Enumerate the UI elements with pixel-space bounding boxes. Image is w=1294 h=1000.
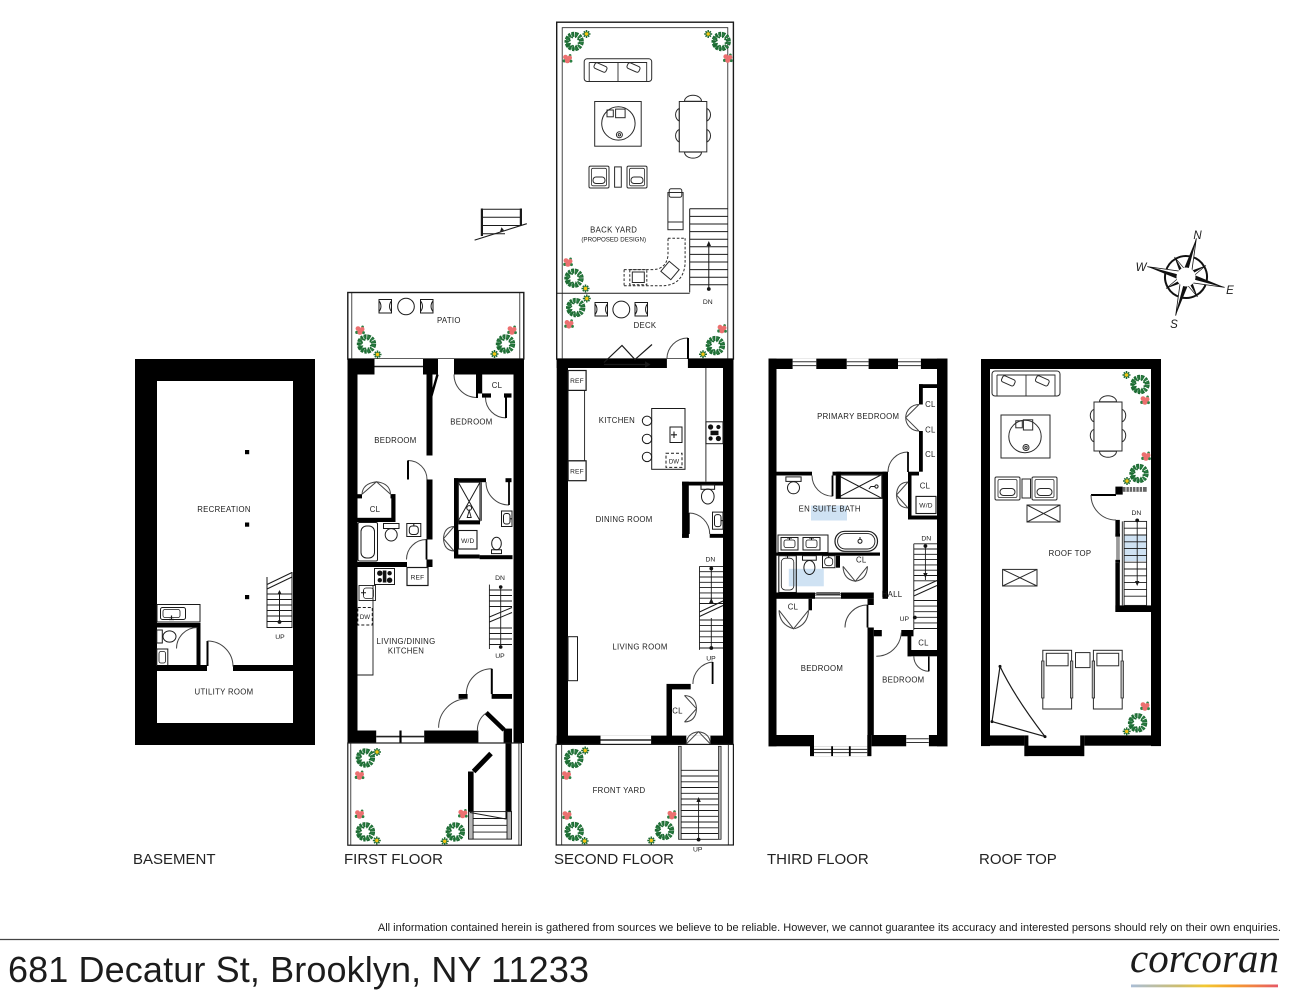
svg-text:LIVING/DINING: LIVING/DINING (377, 637, 436, 646)
svg-text:KITCHEN: KITCHEN (388, 647, 424, 656)
svg-text:CL: CL (856, 556, 867, 565)
svg-text:DECK: DECK (634, 321, 657, 330)
svg-text:THIRD FLOOR: THIRD FLOOR (767, 851, 869, 868)
svg-text:DW: DW (669, 459, 679, 466)
svg-text:BEDROOM: BEDROOM (450, 418, 492, 427)
svg-text:RECREATION: RECREATION (197, 505, 251, 514)
svg-text:CL: CL (672, 707, 683, 716)
svg-text:CL: CL (918, 639, 929, 648)
svg-text:BEDROOM: BEDROOM (882, 676, 924, 685)
svg-text:N: N (1193, 230, 1202, 242)
svg-text:REF: REF (411, 575, 425, 582)
svg-text:REF: REF (570, 378, 584, 385)
svg-text:EN SUITE BATH: EN SUITE BATH (799, 505, 861, 514)
svg-text:681 Decatur St, Brooklyn, NY 1: 681 Decatur St, Brooklyn, NY 11233 (8, 949, 589, 990)
svg-text:FRONT YARD: FRONT YARD (593, 786, 646, 795)
svg-text:ROOF TOP: ROOF TOP (979, 851, 1057, 868)
svg-text:CL: CL (492, 381, 503, 390)
svg-text:CL: CL (920, 482, 931, 491)
svg-text:E: E (1226, 285, 1234, 297)
svg-text:DW: DW (360, 614, 370, 621)
svg-text:BACK YARD: BACK YARD (590, 226, 637, 235)
svg-text:KITCHEN: KITCHEN (599, 416, 635, 425)
svg-text:UP: UP (495, 653, 505, 660)
svg-text:DN: DN (703, 299, 713, 306)
svg-text:BASEMENT: BASEMENT (133, 851, 216, 868)
svg-text:ROOF TOP: ROOF TOP (1049, 549, 1092, 558)
svg-text:DINING ROOM: DINING ROOM (596, 515, 653, 524)
svg-text:All information contained here: All information contained herein is gath… (378, 922, 1281, 934)
svg-text:CL: CL (370, 505, 381, 514)
svg-text:CL: CL (925, 400, 936, 409)
svg-text:BEDROOM: BEDROOM (801, 664, 843, 673)
svg-text:PATIO: PATIO (437, 316, 461, 325)
svg-text:PRIMARY BEDROOM: PRIMARY BEDROOM (817, 412, 899, 421)
svg-text:W: W (1136, 262, 1148, 274)
svg-text:CL: CL (925, 450, 936, 459)
svg-text:DN: DN (1131, 510, 1141, 517)
svg-text:UP: UP (693, 847, 703, 854)
svg-text:BEDROOM: BEDROOM (374, 436, 416, 445)
svg-text:DN: DN (495, 575, 505, 582)
svg-text:UP: UP (275, 634, 285, 641)
svg-text:HALL: HALL (882, 590, 903, 599)
svg-text:corcoran: corcoran (1130, 935, 1279, 981)
svg-text:SECOND FLOOR: SECOND FLOOR (554, 851, 674, 868)
svg-text:W/D: W/D (919, 503, 932, 510)
svg-text:REF: REF (570, 468, 584, 475)
svg-text:S: S (1170, 319, 1178, 331)
svg-text:CL: CL (925, 426, 936, 435)
svg-text:W/D: W/D (461, 538, 474, 545)
svg-text:UP: UP (900, 616, 910, 623)
svg-text:FIRST FLOOR: FIRST FLOOR (344, 851, 443, 868)
svg-text:DN: DN (705, 557, 715, 564)
svg-text:DN: DN (921, 536, 931, 543)
svg-text:CL: CL (788, 603, 799, 612)
svg-text:UTILITY ROOM: UTILITY ROOM (195, 688, 254, 697)
svg-text:(PROPOSED DESIGN): (PROPOSED DESIGN) (581, 237, 646, 244)
svg-text:UP: UP (706, 656, 716, 663)
svg-text:LIVING ROOM: LIVING ROOM (612, 643, 667, 652)
